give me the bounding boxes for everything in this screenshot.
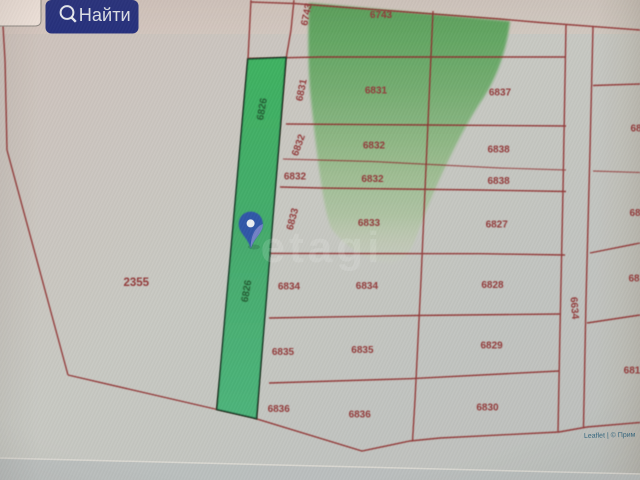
svg-text:6834: 6834 (278, 282, 301, 293)
svg-text:681: 681 (624, 366, 640, 377)
svg-text:68: 68 (629, 208, 640, 219)
svg-text:2355: 2355 (124, 277, 150, 289)
svg-text:6832: 6832 (361, 174, 384, 185)
svg-text:6833: 6833 (358, 218, 381, 229)
svg-text:6832: 6832 (363, 141, 386, 152)
svg-text:6837: 6837 (489, 88, 512, 99)
svg-text:6835: 6835 (351, 345, 374, 356)
svg-text:6835: 6835 (272, 347, 295, 358)
svg-text:6832: 6832 (284, 172, 307, 183)
svg-text:6838: 6838 (487, 144, 510, 155)
svg-text:6829: 6829 (480, 340, 503, 351)
svg-text:6828: 6828 (481, 280, 504, 291)
svg-text:6836: 6836 (268, 404, 291, 415)
svg-text:6838: 6838 (487, 176, 510, 187)
svg-text:Leaflet | © Прим: Leaflet | © Прим (584, 431, 636, 440)
svg-text:6836: 6836 (349, 409, 372, 420)
svg-text:6830: 6830 (476, 403, 499, 414)
svg-text:6827: 6827 (486, 219, 509, 230)
svg-text:68: 68 (628, 274, 640, 285)
svg-text:6831: 6831 (365, 86, 388, 97)
svg-text:6634: 6634 (567, 297, 580, 321)
svg-text:Найти: Найти (79, 5, 131, 25)
svg-text:etagi: etagi (261, 223, 384, 272)
svg-text:68: 68 (630, 124, 640, 135)
svg-text:6743: 6743 (370, 10, 393, 21)
svg-text:6834: 6834 (356, 281, 379, 292)
